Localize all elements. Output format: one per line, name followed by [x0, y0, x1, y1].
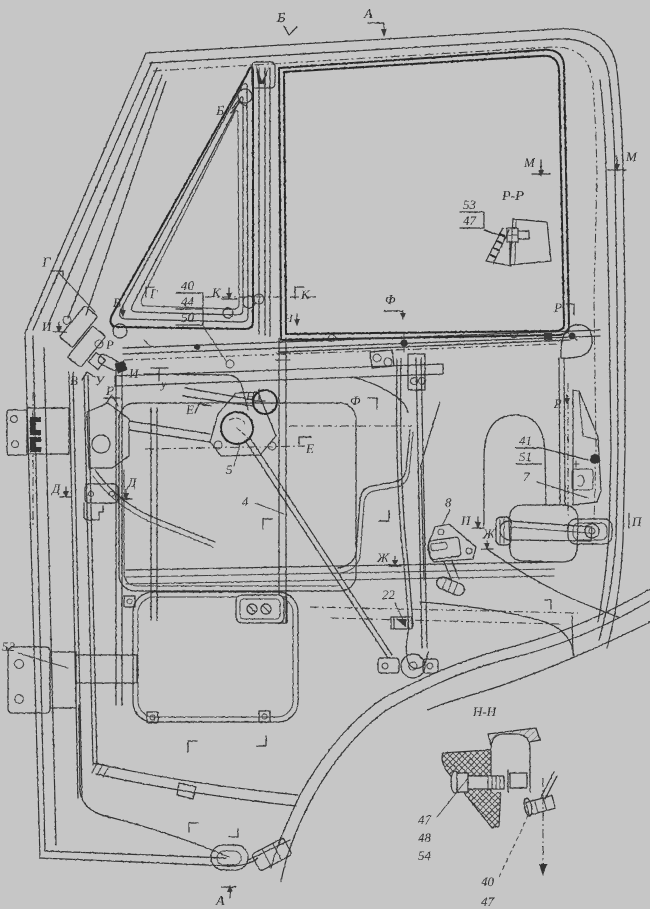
- svg-text:Д: Д: [126, 475, 137, 490]
- svg-text:Б: Б: [215, 104, 224, 119]
- svg-text:В: В: [70, 373, 78, 388]
- svg-text:Р: Р: [553, 300, 562, 315]
- svg-text:К: К: [211, 285, 222, 300]
- svg-text:И: И: [41, 319, 52, 334]
- svg-text:Г: Г: [149, 286, 158, 301]
- svg-text:А: А: [363, 7, 373, 22]
- svg-text:44: 44: [181, 294, 195, 309]
- svg-text:Р: Р: [105, 383, 114, 398]
- svg-text:Н: Н: [283, 311, 294, 325]
- svg-text:Е: Е: [305, 441, 314, 456]
- svg-text:Ф: Ф: [385, 292, 396, 307]
- svg-text:Д: Д: [50, 481, 61, 496]
- svg-text:47: 47: [463, 213, 477, 228]
- svg-text:К: К: [300, 287, 311, 302]
- svg-text:40: 40: [181, 278, 195, 293]
- svg-text:54: 54: [418, 848, 432, 863]
- svg-text:М: М: [625, 149, 638, 164]
- svg-text:47: 47: [418, 812, 432, 827]
- svg-text:А: А: [215, 894, 225, 909]
- svg-text:48: 48: [418, 830, 432, 845]
- svg-text:П: П: [631, 514, 643, 529]
- svg-text:41: 41: [519, 433, 532, 448]
- svg-text:5: 5: [226, 462, 233, 477]
- svg-text:Ф: Ф: [350, 393, 361, 408]
- svg-text:Н-Н: Н-Н: [472, 704, 497, 719]
- svg-text:52: 52: [2, 639, 16, 654]
- svg-text:В: В: [113, 295, 121, 310]
- svg-text:у: у: [160, 377, 167, 391]
- svg-text:8: 8: [445, 495, 452, 510]
- svg-text:7: 7: [523, 469, 530, 484]
- svg-text:П: П: [460, 513, 472, 528]
- svg-text:Б: Б: [276, 11, 285, 26]
- svg-text:40: 40: [481, 874, 495, 889]
- svg-text:Р: Р: [105, 337, 114, 352]
- svg-text:47: 47: [481, 894, 495, 909]
- svg-text:51: 51: [519, 449, 532, 464]
- svg-text:Р-Р: Р-Р: [501, 189, 524, 204]
- svg-text:4: 4: [242, 494, 249, 509]
- svg-text:И: И: [128, 366, 139, 381]
- svg-text:22: 22: [382, 587, 396, 602]
- svg-text:М: М: [523, 155, 536, 170]
- svg-text:Е: Е: [185, 402, 194, 417]
- svg-text:53: 53: [463, 197, 477, 212]
- svg-text:Ж: Ж: [376, 550, 390, 565]
- svg-text:Г: Г: [41, 255, 52, 271]
- svg-text:50: 50: [181, 310, 195, 325]
- svg-text:Р: Р: [553, 396, 562, 411]
